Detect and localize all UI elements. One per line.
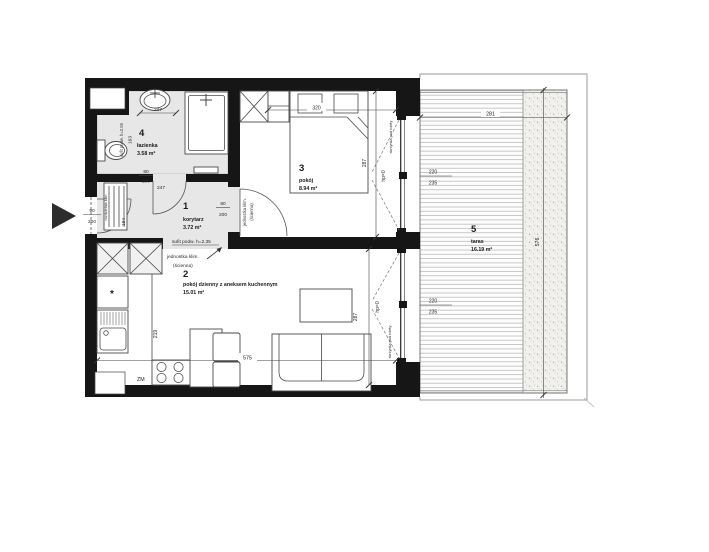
- window1-h: 235: [429, 181, 438, 187]
- dim-living-d: 287: [353, 313, 359, 322]
- dim-kitchen: 219: [153, 330, 159, 339]
- terrace-gravel-band: [523, 90, 567, 393]
- room4-number: 4: [139, 128, 145, 139]
- corner-niche: [95, 372, 125, 394]
- tall-cabinet-2: [130, 243, 162, 274]
- bath-shelf: [194, 167, 218, 173]
- door-threshold: [228, 187, 240, 232]
- shaft-niche: [90, 88, 125, 109]
- room1-name: korytarz: [183, 217, 204, 223]
- entrance-arrow: [52, 203, 76, 229]
- room4-area: 3.58 m²: [137, 151, 155, 157]
- fridge-mark: *: [110, 289, 114, 300]
- bedroom-door-w: 80: [220, 201, 226, 207]
- room4-name: łazienka: [137, 143, 158, 149]
- room2-number: 2: [183, 269, 188, 280]
- note-ceiling-bath: sufit podw. h=2.55: [119, 122, 124, 157]
- room5-area: 16.19 m²: [471, 247, 492, 253]
- terrace: [420, 90, 567, 393]
- living-furniture: [190, 289, 371, 391]
- dim-terrace-d: 576: [535, 238, 541, 247]
- room3-number: 3: [299, 163, 304, 174]
- dim-terrace-w: 281: [486, 112, 495, 118]
- dim-bath-door: 247: [157, 185, 165, 191]
- dim-hall: 184: [121, 218, 127, 226]
- room1-number: 1: [183, 201, 189, 212]
- room5-name: taras: [471, 239, 484, 245]
- dim-bedroom-w: 320: [312, 106, 321, 112]
- room5-number: 5: [471, 224, 477, 235]
- stove: [152, 360, 192, 385]
- shower: [185, 92, 228, 154]
- floor-plan: *: [0, 0, 709, 552]
- note-ac-mount-vertical: (ścienna): [249, 203, 254, 221]
- bedroom-door-arc: [240, 189, 287, 236]
- sofa: [272, 334, 371, 391]
- note-ceiling-hall: sufit podw. h=2.35: [172, 239, 211, 245]
- floor-plan-canvas: *: [0, 0, 709, 552]
- dishwasher-label: ZM: [137, 377, 145, 383]
- entrance-w: 90: [89, 208, 95, 214]
- dim-basin: 247: [154, 107, 162, 113]
- chair-1: [213, 333, 240, 361]
- tall-cabinet-1: [97, 243, 128, 274]
- note-shutter-living: skrzynka pod rolety: [388, 326, 392, 359]
- window1-w: 220: [429, 170, 438, 176]
- note-ac-mount: (ścienna): [173, 263, 193, 269]
- coffee-table: [300, 289, 352, 322]
- room2-name: pokój dzienny z aneksem kuchennym: [183, 282, 278, 288]
- room3-name: pokój: [299, 178, 314, 184]
- window2-w: 220: [429, 299, 438, 305]
- kitchen-sink: [97, 310, 128, 353]
- dim-bedroom-d: 287: [362, 159, 368, 168]
- dim-living-w: 575: [243, 356, 252, 362]
- note-sill-living: hp=0: [375, 301, 381, 312]
- note-ac-unit: jednostka klim.: [166, 254, 199, 260]
- room2-area: 15.01 m²: [183, 290, 204, 296]
- note-sill-bedroom: hp=0: [381, 170, 387, 181]
- note-ac-distribution: rozdzielnia klim.: [104, 193, 108, 220]
- bedroom-door-h: 200: [219, 212, 227, 218]
- bath-door-h: 200: [142, 179, 150, 185]
- bath-door-w: 80: [143, 169, 149, 175]
- wardrobe: [240, 91, 289, 122]
- room3-area: 8.94 m²: [299, 186, 317, 192]
- note-ac-unit-vertical: jednostka klim.: [242, 198, 247, 227]
- dim-bath-len: 163: [128, 136, 134, 144]
- chair-2: [213, 362, 240, 387]
- room1-area: 3.72 m²: [183, 225, 201, 231]
- window2-h: 235: [429, 310, 438, 316]
- note-shutter-bedroom: skrzynka pod rolety: [389, 121, 393, 154]
- entrance-h: 200: [88, 219, 96, 225]
